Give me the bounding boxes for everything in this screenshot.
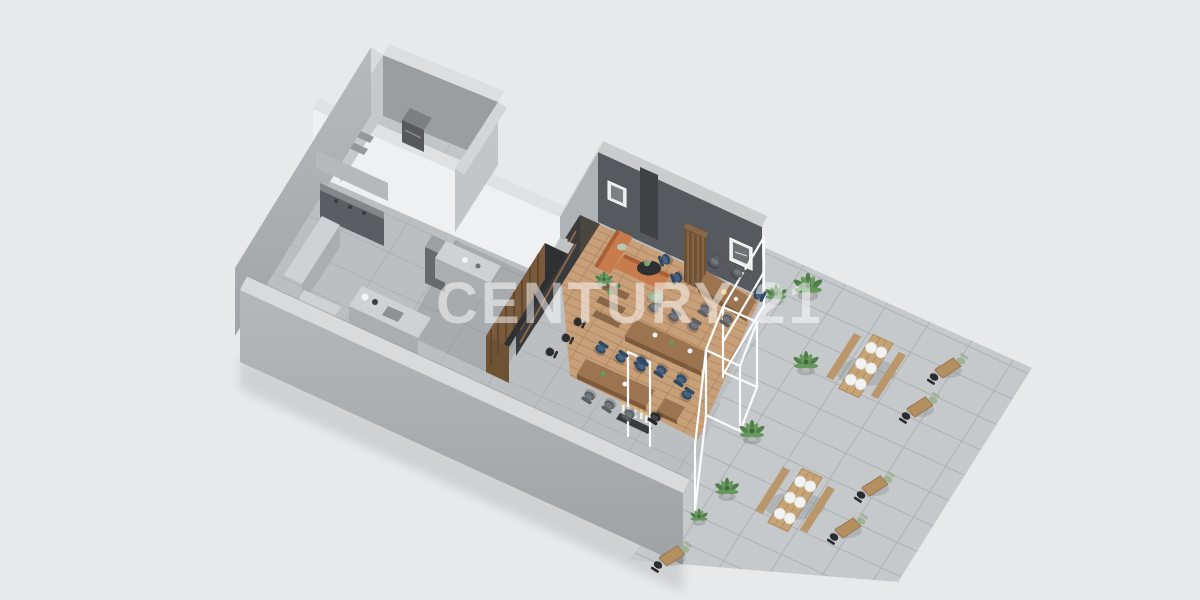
floorplan-render: CENTURY 21 [0,0,1200,600]
watermark: CENTURY 21 [436,270,824,337]
wall-column [640,167,658,240]
